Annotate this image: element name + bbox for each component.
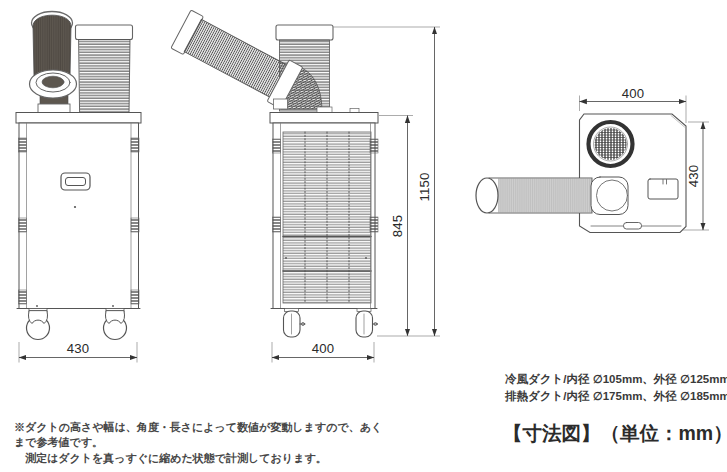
figure-title: 【寸法図】 [503, 420, 601, 447]
dim-top-width: 400 [622, 86, 645, 101]
handle-top [624, 223, 642, 230]
cold-air-duct-front [30, 12, 77, 114]
duct-foot [274, 99, 288, 109]
exhaust-duct-spec: 排熱ダクト/内径 ∅175mm、外径 ∅185mm [505, 388, 727, 405]
figure-unit: （単位：mm） [601, 420, 727, 447]
side-latch [19, 290, 27, 304]
dim-body-height: 845 [390, 215, 405, 238]
control-box-top [648, 179, 678, 199]
caster-front-right [104, 309, 127, 340]
side-latch [131, 138, 139, 152]
dim-front-width: 430 [67, 341, 90, 356]
dim-total-height: 1150 [417, 172, 432, 201]
footnote: ※ダクトの高さや幅は、角度・長さによって数値が変動しますので、あくまで参考値です… [14, 420, 384, 466]
exhaust-outlet-ring-top [589, 122, 633, 166]
side-latch [19, 218, 27, 232]
cold-air-duct-top [476, 177, 628, 215]
dim-top-depth: 430 [686, 165, 701, 188]
caster-side-left [284, 309, 306, 338]
caster-side-right [356, 309, 378, 338]
front-view [16, 12, 141, 340]
cabinet-front [16, 113, 141, 309]
spot-cooler-dimension-figure: 430 400 845 1150 400 430 ※ダクトの高さや幅は、角度・長… [0, 0, 727, 472]
side-latch [19, 138, 27, 152]
figure-caption: 【寸法図】 （単位：mm） [503, 420, 727, 447]
duct-specs: 冷風ダクト/内径 ∅105mm、外径 ∅125mm 排熱ダクト/内径 ∅175m… [505, 371, 727, 405]
cold-duct-spec: 冷風ダクト/内径 ∅105mm、外径 ∅125mm [505, 371, 727, 388]
dim-side-depth: 400 [312, 341, 335, 356]
side-latch [131, 218, 139, 232]
cabinet-side [270, 113, 378, 309]
side-latch [131, 290, 139, 304]
caster-front-left [27, 309, 50, 340]
exhaust-duct-front [76, 25, 133, 113]
side-view [170, 8, 378, 337]
top-view [476, 114, 686, 233]
footnote-line2: 測定はダクトを真っすぐに縮めた状態で計測しております。 [14, 451, 384, 466]
footnote-line1: ※ダクトの高さや幅は、角度・長さによって数値が変動しますので、あくまで参考値です… [14, 420, 384, 451]
